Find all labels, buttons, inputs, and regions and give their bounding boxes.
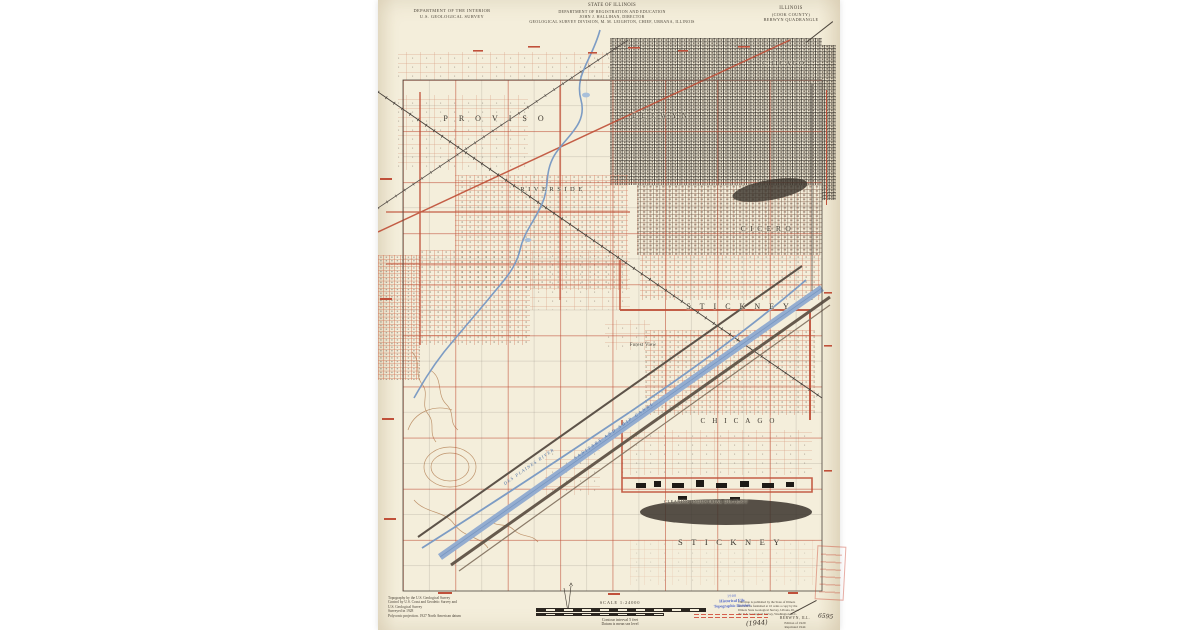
credits-block: Topography by the U.S. Geological Survey…: [388, 596, 518, 618]
header-agency: DEPARTMENT OF THE INTERIOR U.S. GEOLOGIC…: [390, 8, 514, 19]
map-canvas: [378, 0, 840, 630]
place-label-stickney-south: STICKNEY: [662, 537, 804, 547]
scale-bar-feet: [536, 613, 664, 616]
credit-line: Polyconic projection. 1927 North America…: [388, 614, 518, 618]
edition-reprint: Reprinted 1944: [770, 625, 820, 629]
handwritten-year: (1944): [746, 618, 768, 627]
handwritten-number: 6595: [818, 612, 834, 621]
edition-block: BERWYN, ILL. Edition of 1929 Reprinted 1…: [770, 616, 820, 629]
header-quad-name: BERWYN QUADRANGLE: [750, 17, 832, 22]
place-label-stickney-mid: STICKNEY: [664, 302, 820, 311]
header-state-line4: GEOLOGICAL SURVEY DIVISION, M. M. LEIGHT…: [516, 19, 708, 24]
red-print-lines: [694, 612, 768, 618]
place-label-chicago-mid: CHICAGO: [684, 417, 798, 425]
library-received-stamp: [815, 545, 847, 600]
place-label-cicero: CICERO: [730, 224, 806, 233]
place-label-proviso: PROVISO: [418, 114, 580, 123]
screenshot-stage: DEPARTMENT OF THE INTERIOR U.S. GEOLOGIC…: [0, 0, 1200, 630]
place-label-forest-view: Forest View: [622, 343, 664, 348]
scale-label: SCALE 1:24000: [536, 600, 704, 606]
header-state: STATE OF ILLINOIS DEPARTMENT OF REGISTRA…: [516, 3, 708, 24]
historical-file-stamp: 1908 Historical File Topographic Divisio…: [700, 593, 764, 609]
header-quadrangle: ILLINOIS (COOK COUNTY) BERWYN QUADRANGLE: [750, 6, 832, 22]
place-label-riverside: RIVERSIDE: [512, 186, 594, 193]
place-label-chicago-north: CHICAGO: [758, 60, 810, 67]
map-sheet-scan: DEPARTMENT OF THE INTERIOR U.S. GEOLOGIC…: [378, 0, 840, 630]
place-label-berwyn: BERWYN: [622, 112, 702, 120]
datum-note: Datum is mean sea level: [532, 622, 708, 627]
scale-bar-miles: [536, 608, 706, 612]
header-agency-line2: U.S. GEOLOGICAL SURVEY: [390, 14, 514, 20]
place-label-clearing-district: CLEARING INDUSTRIAL DISTRICT: [658, 499, 754, 504]
